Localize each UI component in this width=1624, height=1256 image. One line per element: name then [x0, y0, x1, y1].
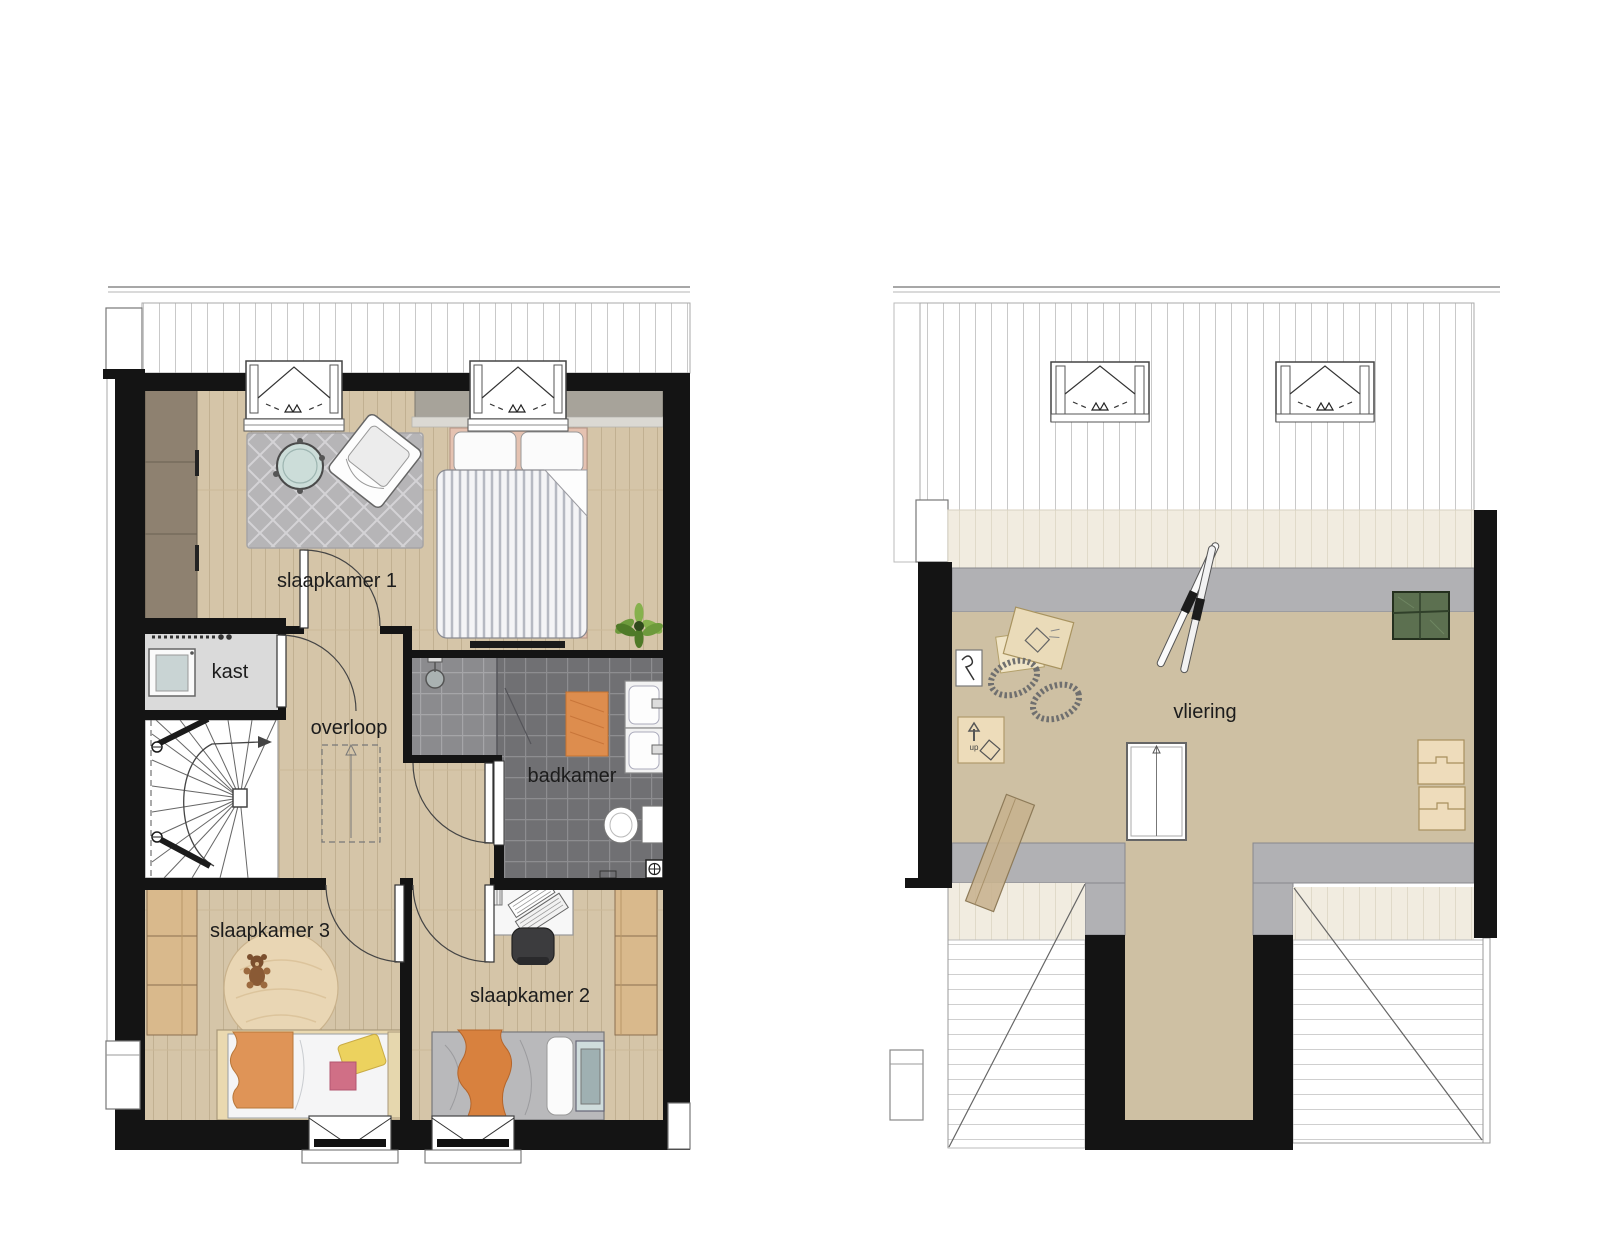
orange-blanket	[230, 1032, 293, 1108]
double-bed	[437, 428, 587, 638]
window-slaapkamer2	[425, 1116, 521, 1163]
label-slaapkamer1: slaapkamer 1	[277, 570, 397, 592]
wardrobe-handle	[195, 545, 199, 571]
sink	[625, 681, 663, 728]
pink-cushion	[330, 1062, 356, 1090]
single-bed-slaapkamer3	[217, 1030, 403, 1120]
card-with-sketch	[956, 650, 982, 686]
exterior-box-right	[668, 1103, 690, 1149]
wardrobe-handle	[195, 450, 199, 476]
tv	[470, 641, 565, 648]
window-slaapkamer3	[302, 1116, 398, 1163]
floor-plan-drawing: slaapkamer 1 kast overloop badkamer slaa…	[0, 0, 1624, 1256]
label-overloop: overloop	[311, 717, 388, 739]
eave-edge-top	[893, 287, 1500, 292]
attic-floor-stem	[1125, 843, 1253, 1120]
vent-symbol	[646, 860, 663, 878]
pillow	[547, 1037, 573, 1115]
exterior-box-left	[916, 500, 948, 562]
storage-box	[1418, 740, 1464, 784]
closet-slaapkamer3	[147, 888, 197, 1035]
label-up: up	[970, 743, 979, 752]
attic-hatch	[1127, 743, 1186, 840]
roof-window-right	[1276, 362, 1374, 422]
wardrobe-slaapkamer1	[145, 390, 199, 620]
pillow	[521, 432, 583, 472]
label-vliering: vliering	[1173, 701, 1236, 723]
green-suitcase	[1393, 592, 1449, 639]
chimney-outline	[106, 308, 142, 372]
shower-drain	[426, 657, 444, 688]
bath-mat	[566, 692, 608, 756]
roof-surface	[920, 303, 1474, 510]
sink	[625, 728, 663, 773]
newel-post	[233, 789, 247, 807]
shower-area	[412, 657, 497, 755]
window-slaapkamer1-left	[244, 361, 344, 431]
storage-box	[1419, 787, 1465, 830]
desk-chair	[512, 928, 554, 965]
round-play-rug	[224, 931, 338, 1045]
pillow	[454, 432, 516, 472]
plan-first-floor: slaapkamer 1 kast overloop badkamer slaa…	[103, 287, 690, 1163]
washing-machine	[149, 649, 195, 696]
label-slaapkamer2: slaapkamer 2	[470, 985, 590, 1007]
plan-attic: up	[890, 287, 1500, 1150]
closet-slaapkamer2	[615, 888, 657, 1035]
exterior-box-left	[106, 1041, 140, 1109]
exterior-box-bottom-left	[890, 1050, 923, 1120]
label-kast: kast	[212, 661, 249, 683]
label-badkamer: badkamer	[528, 765, 617, 787]
staircase	[145, 719, 278, 878]
moving-box-up: up	[958, 717, 1004, 763]
floor-plan-sheet: slaapkamer 1 kast overloop badkamer slaa…	[0, 0, 1624, 1256]
roof-window-left	[1051, 362, 1149, 422]
window-slaapkamer1-right	[468, 361, 568, 431]
single-bed-slaapkamer2	[432, 1030, 604, 1120]
striped-duvet	[437, 470, 587, 638]
label-slaapkamer3: slaapkamer 3	[210, 920, 330, 942]
